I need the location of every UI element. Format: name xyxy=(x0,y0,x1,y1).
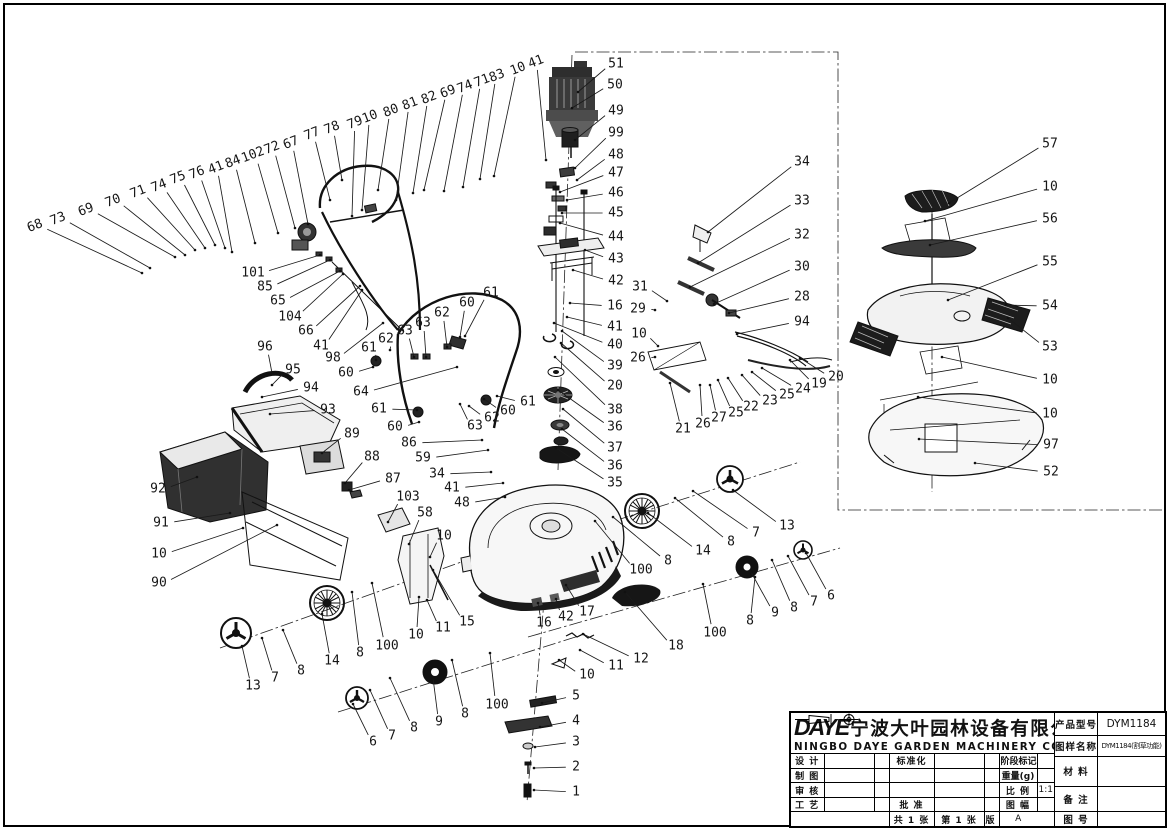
leader-line-11-142 xyxy=(580,650,604,663)
part-point-10 xyxy=(941,356,944,359)
part-point-23 xyxy=(741,374,744,377)
part-label-58: 58 xyxy=(417,507,433,520)
part-label-62: 62 xyxy=(434,307,450,320)
leader-line-60-104 xyxy=(408,422,419,425)
part-point-1 xyxy=(533,789,536,792)
leader-line-32-49 xyxy=(690,238,790,287)
part-label-45: 45 xyxy=(608,207,624,220)
leader-line-100-151 xyxy=(595,521,630,563)
leader-line-75-6 xyxy=(184,185,215,245)
part-label-33: 33 xyxy=(794,195,810,208)
leader-line-60-95 xyxy=(359,367,373,371)
part-label-100: 100 xyxy=(629,564,652,577)
part-label-61: 61 xyxy=(483,287,499,300)
part-point-26 xyxy=(699,384,702,387)
part-point-101 xyxy=(319,254,322,257)
leader-line-79-15 xyxy=(352,131,355,216)
part-point-48 xyxy=(576,179,579,182)
leader-line-50-27 xyxy=(572,89,603,108)
version-value: A xyxy=(999,812,1037,826)
part-label-93: 93 xyxy=(320,404,336,417)
part-label-26: 26 xyxy=(695,418,711,431)
part-label-10: 10 xyxy=(408,629,424,642)
leader-line-69-20 xyxy=(424,100,445,190)
part-label-61: 61 xyxy=(371,403,387,416)
part-label-28: 28 xyxy=(794,291,810,304)
part-point-59 xyxy=(487,449,490,452)
part-label-10: 10 xyxy=(151,548,167,561)
part-point-87 xyxy=(348,489,351,492)
part-label-15: 15 xyxy=(459,616,475,629)
part-point-10 xyxy=(361,209,364,212)
part-label-10: 10 xyxy=(1042,181,1058,194)
part-point-61 xyxy=(416,409,419,412)
leader-line-10-55 xyxy=(650,338,658,346)
leader-line-96-84 xyxy=(268,355,272,373)
part-point-67 xyxy=(307,223,310,226)
part-point-34 xyxy=(490,471,493,474)
part-label-88: 88 xyxy=(364,451,380,464)
part-label-29: 29 xyxy=(630,303,646,316)
part-point-53 xyxy=(1007,317,1010,320)
leader-line-61-108 xyxy=(497,396,515,400)
part-point-51 xyxy=(577,91,580,94)
leader-line-100-145 xyxy=(703,584,711,624)
leader-line-60-107 xyxy=(484,399,496,407)
part-point-85 xyxy=(329,259,332,262)
part-point-100 xyxy=(594,520,597,523)
part-label-86: 86 xyxy=(401,437,417,450)
part-point-3 xyxy=(534,746,537,749)
part-label-42: 42 xyxy=(608,275,624,288)
leader-line-31-53 xyxy=(652,291,667,301)
leader-line-41-25 xyxy=(537,70,546,160)
part-point-75 xyxy=(214,244,217,247)
part-label-51: 51 xyxy=(608,58,624,71)
part-point-17 xyxy=(565,584,568,587)
leader-line-7-147 xyxy=(693,491,748,529)
part-point-10 xyxy=(917,396,920,399)
part-label-54: 54 xyxy=(1042,300,1058,313)
part-label-17: 17 xyxy=(579,606,595,619)
part-point-10 xyxy=(418,596,421,599)
part-label-60: 60 xyxy=(338,367,354,380)
part-point-43 xyxy=(584,249,587,252)
part-label-87: 87 xyxy=(385,473,401,486)
part-point-64 xyxy=(456,366,459,369)
part-point-58 xyxy=(408,543,411,546)
part-label-8: 8 xyxy=(297,665,305,678)
scale-value: 1:1 xyxy=(1037,783,1054,798)
part-point-88 xyxy=(344,482,347,485)
part-label-57: 57 xyxy=(1042,138,1058,151)
part-point-41 xyxy=(231,251,234,254)
part-label-95: 95 xyxy=(285,364,301,377)
part-point-61 xyxy=(375,359,378,362)
part-point-4 xyxy=(539,726,542,729)
part-label-49: 49 xyxy=(608,105,624,118)
part-label-60: 60 xyxy=(387,421,403,434)
leader-line-23-62 xyxy=(742,375,760,396)
part-label-21: 21 xyxy=(675,423,691,436)
leader-line-21-57 xyxy=(670,383,679,421)
part-point-21 xyxy=(669,382,672,385)
leader-line-46-32 xyxy=(567,194,603,200)
title-block: DAYE 宁波大叶园林设备有限公司 NINGBO DAYE GARDEN MAC… xyxy=(789,711,1167,828)
part-label-18: 18 xyxy=(668,640,684,653)
leader-line-10-24 xyxy=(494,77,515,176)
part-label-13: 13 xyxy=(779,520,795,533)
part-label-25: 25 xyxy=(779,389,795,402)
part-point-18 xyxy=(624,591,627,594)
leader-line-41-38 xyxy=(567,317,602,325)
remark-label: 备 注 xyxy=(1055,787,1098,811)
leader-line-9-130 xyxy=(433,678,438,714)
leader-line-63-97 xyxy=(409,339,414,357)
part-label-47: 47 xyxy=(608,167,624,180)
part-point-45 xyxy=(561,212,564,215)
title-block-grid: 设 计 标准化 阶段标记 制 图 重量(g) 审 核 xyxy=(791,754,1054,826)
company-name-en: NINGBO DAYE GARDEN MACHINERY CO.,LTD. xyxy=(794,741,1052,753)
leader-line-56-69 xyxy=(930,221,1037,245)
approve-label: 批 准 xyxy=(889,797,934,812)
part-label-27: 27 xyxy=(711,412,727,425)
leader-line-95-85 xyxy=(272,375,282,385)
part-point-10 xyxy=(429,556,432,559)
part-point-41 xyxy=(361,289,364,292)
leader-line-7-119 xyxy=(262,638,272,670)
part-point-7 xyxy=(261,637,264,640)
part-point-8 xyxy=(771,559,774,562)
material-value xyxy=(1098,757,1165,785)
part-point-50 xyxy=(571,107,574,110)
part-point-71 xyxy=(194,249,197,252)
part-point-57 xyxy=(948,202,951,205)
leader-line-8-120 xyxy=(283,630,297,664)
leader-line-83-23 xyxy=(480,84,495,179)
leader-line-41-8 xyxy=(219,176,232,252)
part-point-12 xyxy=(582,633,585,636)
leader-line-90-117 xyxy=(171,525,277,579)
drawing-no-value xyxy=(1098,812,1165,826)
leader-line-19-65 xyxy=(790,360,809,379)
part-point-10 xyxy=(558,659,561,662)
part-label-11: 11 xyxy=(435,622,451,635)
leader-line-63-98 xyxy=(424,331,426,357)
part-label-91: 91 xyxy=(153,517,169,530)
part-label-42: 42 xyxy=(558,611,574,624)
part-point-97 xyxy=(918,438,921,441)
part-point-35 xyxy=(555,447,558,450)
leader-line-37-44 xyxy=(563,409,604,443)
part-label-6: 6 xyxy=(827,590,835,603)
leader-line-6-152 xyxy=(806,553,826,589)
part-point-40 xyxy=(553,322,556,325)
leader-line-10-124 xyxy=(417,597,419,627)
part-point-99 xyxy=(574,167,577,170)
part-point-83 xyxy=(479,178,482,181)
leader-line-91-115 xyxy=(174,513,230,522)
part-label-92: 92 xyxy=(150,483,166,496)
leader-line-8-156 xyxy=(751,577,755,613)
part-label-10: 10 xyxy=(579,669,595,682)
part-label-61: 61 xyxy=(520,396,536,409)
leader-line-63-105 xyxy=(460,404,467,419)
part-point-10 xyxy=(493,175,496,178)
part-point-82 xyxy=(412,192,415,195)
part-point-86 xyxy=(481,439,484,442)
leader-line-82-19 xyxy=(413,106,427,193)
part-point-102 xyxy=(277,232,280,235)
part-label-8: 8 xyxy=(356,647,364,660)
part-point-92 xyxy=(196,476,199,479)
part-point-42 xyxy=(572,269,575,272)
leader-line-67-12 xyxy=(294,151,308,224)
leader-line-52-76 xyxy=(975,463,1038,471)
leader-line-39-40 xyxy=(562,331,604,362)
leader-line-103-91 xyxy=(388,504,398,522)
part-label-9: 9 xyxy=(771,607,779,620)
leader-line-54-71 xyxy=(1006,305,1037,306)
part-label-31: 31 xyxy=(632,281,648,294)
leader-line-34-111 xyxy=(450,472,491,474)
part-label-63: 63 xyxy=(397,325,413,338)
part-label-48: 48 xyxy=(454,497,470,510)
part-label-104: 104 xyxy=(278,311,301,324)
part-point-16 xyxy=(569,302,572,305)
leader-line-80-17 xyxy=(378,119,389,190)
part-label-14: 14 xyxy=(324,655,340,668)
part-label-36: 36 xyxy=(607,460,623,473)
leader-line-58-92 xyxy=(409,520,419,544)
part-label-46: 46 xyxy=(608,187,624,200)
part-point-60 xyxy=(372,366,375,369)
part-point-74 xyxy=(443,190,446,193)
leader-line-11-125 xyxy=(427,600,436,621)
part-label-63: 63 xyxy=(415,317,431,330)
part-label-4: 4 xyxy=(572,715,580,728)
part-label-24: 24 xyxy=(795,383,811,396)
part-label-100: 100 xyxy=(703,627,726,640)
part-label-43: 43 xyxy=(608,253,624,266)
leader-line-41-112 xyxy=(465,483,503,487)
leader-line-77-13 xyxy=(316,142,330,200)
part-point-31 xyxy=(666,300,669,303)
part-label-7: 7 xyxy=(271,672,279,685)
part-point-65 xyxy=(339,270,342,273)
part-label-10: 10 xyxy=(631,328,647,341)
part-point-61 xyxy=(496,395,499,398)
leader-line-8-129 xyxy=(390,678,410,721)
part-label-97: 97 xyxy=(1043,439,1059,452)
part-label-62: 62 xyxy=(484,412,500,425)
leader-line-86-109 xyxy=(422,440,482,443)
part-point-104 xyxy=(342,273,345,276)
version-label: 版 本 xyxy=(984,812,999,826)
part-point-15 xyxy=(432,569,435,572)
part-label-96: 96 xyxy=(257,341,273,354)
leader-line-87-90 xyxy=(349,481,380,490)
leader-line-55-70 xyxy=(948,265,1037,300)
part-label-8: 8 xyxy=(461,708,469,721)
leader-line-53-72 xyxy=(1008,318,1039,342)
leader-line-64-102 xyxy=(374,367,457,390)
part-point-41 xyxy=(566,316,569,319)
part-point-9 xyxy=(750,571,753,574)
leader-line-99-29 xyxy=(575,138,606,168)
part-point-77 xyxy=(329,199,332,202)
part-point-80 xyxy=(377,189,380,192)
leader-line-8-148 xyxy=(675,498,723,537)
part-point-25 xyxy=(751,371,754,374)
leader-line-38-42 xyxy=(555,357,605,405)
part-point-48 xyxy=(504,496,507,499)
part-point-60 xyxy=(418,421,421,424)
part-label-8: 8 xyxy=(664,555,672,568)
leader-line-84-9 xyxy=(237,170,255,243)
part-label-66: 66 xyxy=(298,325,314,338)
leader-line-78-14 xyxy=(335,136,342,180)
part-label-60: 60 xyxy=(500,405,516,418)
part-point-36 xyxy=(561,428,564,431)
part-label-39: 39 xyxy=(607,360,623,373)
part-label-23: 23 xyxy=(762,395,778,408)
part-label-59: 59 xyxy=(415,452,431,465)
part-label-7: 7 xyxy=(752,527,760,540)
part-point-8 xyxy=(389,677,392,680)
part-label-2: 2 xyxy=(572,761,580,774)
leader-line-12-141 xyxy=(583,634,629,656)
part-label-26: 26 xyxy=(630,352,646,365)
leader-line-20-66 xyxy=(800,358,824,373)
leader-line-88-89 xyxy=(345,463,362,483)
leader-line-51-26 xyxy=(578,69,605,92)
leader-line-61-103 xyxy=(392,409,417,410)
part-point-29 xyxy=(654,309,657,312)
part-label-65: 65 xyxy=(270,295,286,308)
part-point-68 xyxy=(141,272,144,275)
part-point-8 xyxy=(754,576,757,579)
part-point-28 xyxy=(728,312,731,315)
leader-line-18-144 xyxy=(625,592,667,640)
part-label-8: 8 xyxy=(790,602,798,615)
leader-line-100-132 xyxy=(490,653,495,696)
part-point-39 xyxy=(561,330,564,333)
leader-line-68-0 xyxy=(47,229,142,273)
part-label-62: 62 xyxy=(378,333,394,346)
part-point-5 xyxy=(541,702,544,705)
part-point-8 xyxy=(351,591,354,594)
part-point-47 xyxy=(559,191,562,194)
part-point-60 xyxy=(483,398,486,401)
part-label-10: 10 xyxy=(1042,374,1058,387)
leader-line-70-3 xyxy=(124,206,185,255)
part-point-20 xyxy=(560,342,563,345)
leader-line-10-16 xyxy=(362,125,369,210)
part-point-46 xyxy=(566,199,569,202)
part-label-55: 55 xyxy=(1042,256,1058,269)
part-point-7 xyxy=(787,555,790,558)
part-point-62 xyxy=(468,405,471,408)
part-label-16: 16 xyxy=(536,617,552,630)
part-point-22 xyxy=(727,377,730,380)
part-label-52: 52 xyxy=(1043,466,1059,479)
leader-line-43-35 xyxy=(585,250,603,257)
part-label-11: 11 xyxy=(608,660,624,673)
part-label-6: 6 xyxy=(369,736,377,749)
part-point-33 xyxy=(697,262,700,265)
part-point-81 xyxy=(395,199,398,202)
stage-mark-label: 阶段标记 xyxy=(999,754,1037,768)
part-point-37 xyxy=(562,408,565,411)
part-label-20: 20 xyxy=(607,380,623,393)
part-label-7: 7 xyxy=(388,730,396,743)
leader-line-40-39 xyxy=(554,323,602,342)
part-point-63 xyxy=(459,403,462,406)
part-point-78 xyxy=(341,179,344,182)
part-point-14 xyxy=(321,613,324,616)
part-point-69 xyxy=(423,189,426,192)
part-point-70 xyxy=(184,254,187,257)
leader-line-3-135 xyxy=(535,743,566,747)
leader-line-4-134 xyxy=(540,722,566,727)
leader-lines-layer xyxy=(0,0,1169,831)
leader-line-34-47 xyxy=(708,167,791,232)
leader-line-47-31 xyxy=(560,176,603,192)
leader-line-22-61 xyxy=(728,378,743,401)
product-model-label: 产品型号 xyxy=(1055,713,1098,735)
leader-line-10-143 xyxy=(559,660,575,671)
part-label-100: 100 xyxy=(375,640,398,653)
leader-line-14-121 xyxy=(322,614,329,653)
part-label-1: 1 xyxy=(572,786,580,799)
part-point-2 xyxy=(533,767,536,770)
part-point-25 xyxy=(717,379,720,382)
part-label-103: 103 xyxy=(396,491,419,504)
leader-line-6-127 xyxy=(353,704,368,735)
leader-line-71-4 xyxy=(147,198,195,250)
part-point-54 xyxy=(1005,304,1008,307)
leader-line-72-11 xyxy=(276,156,295,228)
check-label: 审 核 xyxy=(791,783,824,798)
part-label-35: 35 xyxy=(607,477,623,490)
part-point-41 xyxy=(545,159,548,162)
part-label-16: 16 xyxy=(607,300,623,313)
part-point-91 xyxy=(229,512,232,515)
part-point-8 xyxy=(674,497,677,500)
draft-label: 制 图 xyxy=(791,768,824,783)
part-point-11 xyxy=(426,599,429,602)
part-point-24 xyxy=(761,367,764,370)
leader-line-5-133 xyxy=(542,698,566,703)
part-label-41: 41 xyxy=(444,482,460,495)
leader-line-102-10 xyxy=(258,164,278,233)
part-point-62 xyxy=(389,349,392,352)
leader-line-8-122 xyxy=(352,592,359,645)
leader-line-17-140 xyxy=(566,585,579,606)
leader-line-33-48 xyxy=(698,205,790,263)
drawing-no-label: 图 号 xyxy=(1055,812,1098,826)
part-point-89 xyxy=(321,452,324,455)
part-label-3: 3 xyxy=(572,736,580,749)
part-label-37: 37 xyxy=(607,442,623,455)
sheets-total: 共 1 张 xyxy=(889,812,934,826)
part-label-90: 90 xyxy=(151,577,167,590)
part-point-38 xyxy=(554,356,557,359)
part-label-63: 63 xyxy=(467,420,483,433)
part-point-100 xyxy=(489,652,492,655)
part-label-94: 94 xyxy=(794,316,810,329)
